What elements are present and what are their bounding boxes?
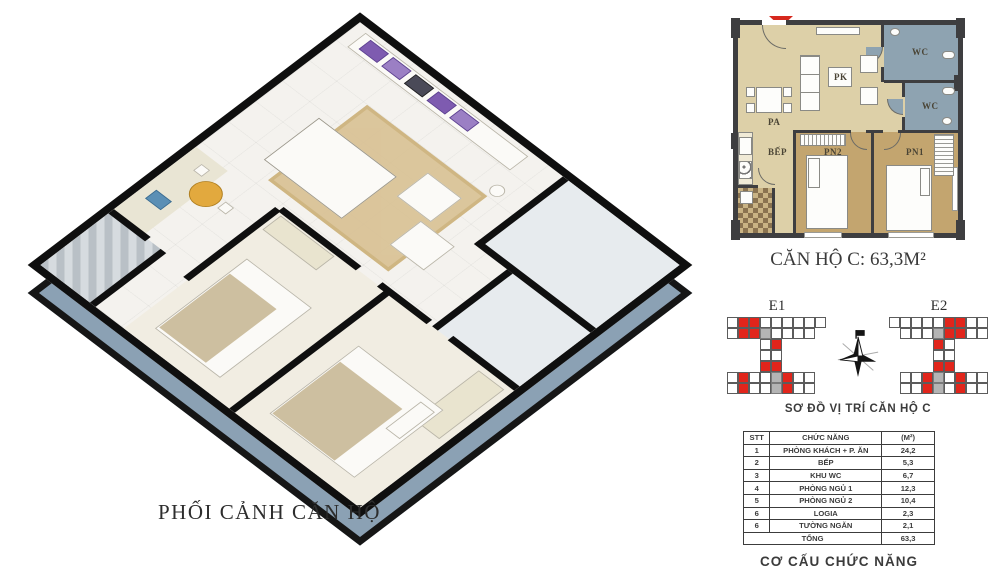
unit-cell [977,383,988,394]
unit-cell [804,372,815,383]
highlighted-unit-cell [955,328,966,339]
info-column: PK PA BẾP PN2 PN1 WC WC CĂN HỘ C: 63,3M²… [723,0,993,583]
table-total-row: TỔNG63,3 [744,532,935,545]
wc-toilet [942,87,955,95]
wc2-door-arc [887,99,903,115]
unit-cell [771,372,782,383]
unit-cell [933,350,944,361]
area-table-body: 1PHÒNG KHÁCH + P. ĂN24,22BẾP5,33KHU WC6,… [744,444,935,545]
cell-area: 10,4 [882,494,935,507]
cell-stt: 2 [744,457,770,470]
unit-cell [727,328,738,339]
highlighted-unit-cell [782,372,793,383]
cell-function: BẾP [770,457,882,470]
cell-stt: 3 [744,469,770,482]
block-e2-grid [889,317,989,395]
unit-cell [922,317,933,328]
unit-cell [900,383,911,394]
window [888,232,934,238]
unit-cell [793,317,804,328]
cell-function: PHÒNG KHÁCH + P. ĂN [770,444,882,457]
apartment-title: CĂN HỘ C: 63,3M² [733,249,963,271]
unit-cell [727,383,738,394]
cell-area: 6,7 [882,469,935,482]
unit-cell [933,328,944,339]
sofa-plan [800,55,820,111]
unit-cell [933,372,944,383]
header-function: CHỨC NĂNG [770,432,882,445]
unit-cell [977,328,988,339]
wc-sink [890,28,900,36]
block-e1-label: E1 [727,298,827,315]
table-caption: CƠ CẤU CHỨC NĂNG [743,554,935,569]
unit-cell [771,317,782,328]
table-row: 3KHU WC6,7 [744,469,935,482]
unit-cell [760,383,771,394]
table-row: 5PHÒNG NGỦ 210,4 [744,494,935,507]
block-e1: E1 [727,298,827,395]
unit-cell [911,328,922,339]
highlighted-unit-cell [738,328,749,339]
table-row: 6TƯỜNG NGĂN2,1 [744,520,935,533]
table-row: 1PHÒNG KHÁCH + P. ĂN24,2 [744,444,935,457]
label-wc1: WC [912,47,929,57]
highlighted-unit-cell [922,372,933,383]
highlighted-unit-cell [955,372,966,383]
unit-cell [771,350,782,361]
highlighted-unit-cell [749,328,760,339]
floor-plan-2d: PK PA BẾP PN2 PN1 WC WC CĂN HỘ C: 63,3M² [733,20,973,271]
unit-cell [933,317,944,328]
highlighted-unit-cell [944,361,955,372]
logia-door-arc [758,168,775,185]
floor-lamp [486,182,509,199]
position-diagram-section: E1 E2 [729,298,987,415]
wc-sink [942,117,952,125]
block-e2: E2 [889,298,989,395]
entrance-opening [762,20,786,25]
highlighted-unit-cell [955,317,966,328]
highlighted-unit-cell [738,372,749,383]
highlighted-unit-cell [771,339,782,350]
unit-cell [900,328,911,339]
compass-icon [835,328,881,387]
header-stt: STT [744,432,770,445]
dining-chair-plan [783,87,792,97]
label-wc2: WC [922,101,939,111]
unit-cell [966,317,977,328]
unit-cell [782,328,793,339]
dining-chair-plan [746,103,755,113]
table-row: 6LOGIA2,3 [744,507,935,520]
unit-cell [922,328,933,339]
cell-area: 12,3 [882,482,935,495]
kitchen-stove [739,161,752,179]
unit-cell [944,372,955,383]
unit-cell [944,350,955,361]
cell-function: PHÒNG NGỦ 2 [770,494,882,507]
armchair-plan [860,55,878,73]
unit-cell [804,328,815,339]
unit-cell [793,328,804,339]
highlighted-unit-cell [933,361,944,372]
unit-cell [782,317,793,328]
unit-cell [793,372,804,383]
unit-cell [760,328,771,339]
window [804,232,842,238]
label-bedroom2: PN2 [824,147,842,157]
unit-cell [900,372,911,383]
cell-stt: 1 [744,444,770,457]
unit-cell [760,339,771,350]
table-row: 2BẾP5,3 [744,457,935,470]
washing-machine [740,191,753,204]
unit-cell [966,328,977,339]
cell-area: 24,2 [882,444,935,457]
label-bedroom1: PN1 [906,147,924,157]
cell-stt: 4 [744,482,770,495]
unit-cell [977,317,988,328]
unit-cell [815,317,826,328]
highlighted-unit-cell [922,383,933,394]
unit-cell [911,317,922,328]
unit-cell [749,372,760,383]
kitchen-sink [739,137,752,155]
highlighted-unit-cell [955,383,966,394]
unit-cell [944,339,955,350]
cell-stt: 6 [744,520,770,533]
cell-area: 2,1 [882,520,935,533]
label-dining: PA [768,117,780,127]
unit-cell [749,383,760,394]
unit-cell [911,372,922,383]
unit-cell [804,383,815,394]
label-living: PK [834,72,848,82]
highlighted-unit-cell [944,317,955,328]
apartment-3d-render: PHỐI CẢNH CĂN HỘ [10,0,710,583]
total-label: TỔNG [744,532,882,545]
unit-cell [727,317,738,328]
armchair-plan [860,87,878,105]
cell-function: KHU WC [770,469,882,482]
unit-cell [933,383,944,394]
highlighted-unit-cell [944,328,955,339]
dining-chair-plan [746,87,755,97]
wc-toilet [942,51,955,59]
highlighted-unit-cell [749,317,760,328]
dining-chair [217,202,234,215]
unit-cell [760,350,771,361]
label-kitchen: BẾP [768,147,787,157]
unit-cell [911,383,922,394]
unit-cell [889,317,900,328]
cell-function: LOGIA [770,507,882,520]
cell-function: TƯỜNG NGĂN [770,520,882,533]
unit-cell [900,317,911,328]
render-caption: PHỐI CẢNH CĂN HỘ [158,500,381,525]
bed-pillow-plan [920,168,930,196]
highlighted-unit-cell [738,317,749,328]
apartment-3d-floor [28,12,693,517]
unit-cell [760,372,771,383]
table-row: 4PHÒNG NGỦ 112,3 [744,482,935,495]
unit-cell [804,317,815,328]
table-header-row: STT CHỨC NĂNG (M²) [744,432,935,445]
highlighted-unit-cell [738,383,749,394]
cell-stt: 6 [744,507,770,520]
dining-table-plan [756,87,782,113]
cell-stt: 5 [744,494,770,507]
bed-pillow-plan [808,158,820,188]
area-table: STT CHỨC NĂNG (M²) 1PHÒNG KHÁCH + P. ĂN2… [743,431,935,545]
tv-plan [816,27,860,35]
wardrobe-plan [800,134,846,146]
cell-function: PHÒNG NGỦ 1 [770,482,882,495]
brochure-page: PHỐI CẢNH CĂN HỘ [0,0,1000,583]
unit-cell [966,372,977,383]
cell-area: 2,3 [882,507,935,520]
highlighted-unit-cell [760,361,771,372]
block-e2-label: E2 [889,298,989,315]
highlighted-unit-cell [782,383,793,394]
unit-cell [760,317,771,328]
header-area: (M²) [882,432,935,445]
position-caption: SƠ ĐỒ VỊ TRÍ CĂN HỘ C [729,403,987,415]
unit-cell [771,383,782,394]
wardrobe-plan [934,134,954,176]
cell-area: 5,3 [882,457,935,470]
area-table-section: STT CHỨC NĂNG (M²) 1PHÒNG KHÁCH + P. ĂN2… [743,431,958,569]
unit-cell [977,372,988,383]
highlighted-unit-cell [771,361,782,372]
entrance-door-arc [762,25,786,49]
unit-cell [944,383,955,394]
dining-chair-plan [783,103,792,113]
unit-cell [966,383,977,394]
floor-plan-canvas: PK PA BẾP PN2 PN1 WC WC [733,20,963,238]
unit-cell [771,328,782,339]
block-e1-grid [727,317,827,395]
unit-cell [793,383,804,394]
unit-cell [727,372,738,383]
total-value: 63,3 [882,532,935,545]
highlighted-unit-cell [933,339,944,350]
